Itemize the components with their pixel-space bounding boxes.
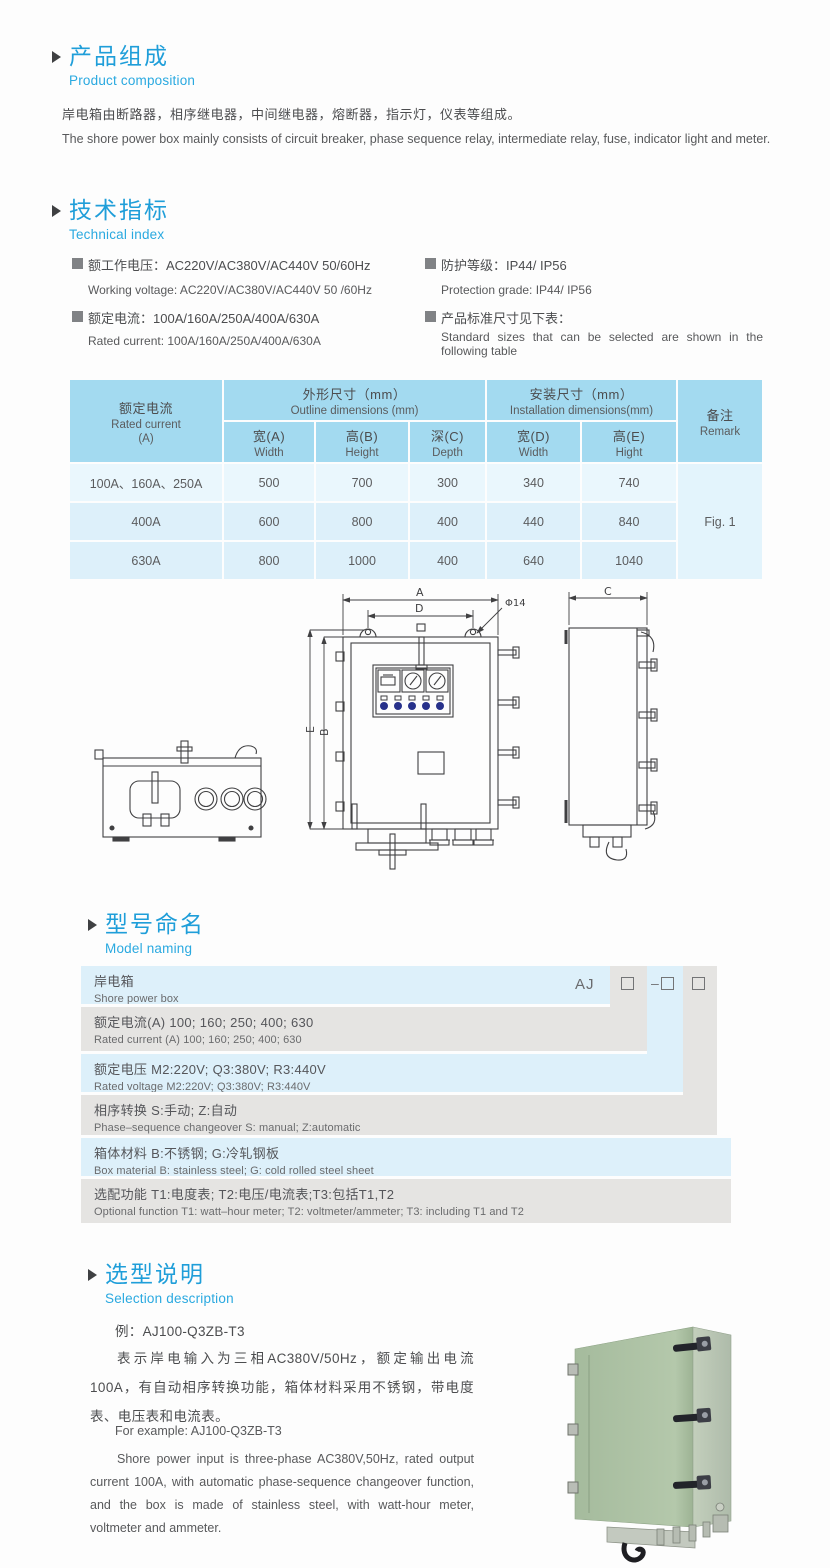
header-en: Installation dimensions(mm) [510, 405, 653, 417]
meter-panel [373, 665, 453, 717]
section-technical-index-header: 技术指标 Technical index [52, 198, 169, 242]
selection-example-zh: 例：AJ100-Q3ZB-T3 [115, 1320, 245, 1340]
header-en: Depth [432, 447, 463, 459]
header-unit: (A) [138, 433, 153, 445]
header-zh: 安装尺寸（mm） [530, 384, 634, 403]
section-title-zh: 选型说明 [105, 1262, 234, 1287]
catalog-page: 产品组成 Product composition 岸电箱由断路器，相序继电器，中… [0, 0, 830, 1568]
table-header-outline-dims: 外形尺寸（mm） Outline dimensions (mm) [224, 380, 485, 420]
spec-rated-current-zh: 额定电流：100A/160A/250A/400A/630A [88, 308, 319, 327]
table-cell: 400A [70, 503, 222, 540]
spec-protection-grade-en: Protection grade: IP44/ IP56 [441, 283, 592, 297]
section-arrow-icon [88, 1269, 97, 1281]
section-title-zh: 型号命名 [105, 912, 205, 937]
model-row-zh: 额定电流(A) 100; 160; 250; 400; 630 [94, 1012, 647, 1031]
table-cell-remark: Fig. 1 [678, 464, 762, 579]
model-row-en: Shore power box [94, 993, 610, 1004]
model-code-box-2 [661, 977, 674, 990]
model-code-dash: – [651, 975, 659, 991]
product-photo [545, 1303, 803, 1565]
model-row-zh: 箱体材料 B:不锈钢; G:冷轧钢板 [94, 1143, 731, 1162]
table-subheader-width-d: 宽(D) Width [487, 422, 580, 462]
model-row-zh: 岸电箱 [94, 971, 610, 990]
spec-protection-grade-zh: 防护等级：IP44/ IP56 [441, 255, 567, 274]
spec-standard-sizes: 产品标准尺寸见下表： [425, 308, 765, 327]
model-row-optional-function: 选配功能 T1:电度表; T2:电压/电流表;T3:包括T1,T2 Option… [81, 1179, 731, 1223]
table-subheader-height-e: 高(E) Hight [582, 422, 676, 462]
svg-text:C: C [604, 585, 612, 598]
table-cell: 800 [224, 542, 314, 579]
model-row-en: Rated current (A) 100; 160; 250; 400; 63… [94, 1034, 647, 1046]
header-en: Hight [616, 447, 643, 459]
section-arrow-icon [88, 919, 97, 931]
section-model-naming-header: 型号命名 Model naming [88, 912, 205, 956]
section-arrow-icon [52, 205, 61, 217]
spec-standard-sizes-en: Standard sizes that can be selected are … [441, 330, 763, 358]
section-title-zh: 技术指标 [69, 198, 169, 223]
header-zh: 宽(D) [517, 426, 550, 445]
header-en: Width [254, 447, 283, 459]
square-bullet-icon [72, 311, 83, 322]
model-row-shore-power-box: 岸电箱 Shore power box [81, 966, 610, 1004]
drawing-front-view [336, 624, 519, 869]
model-row-en: Phase–sequence changeover S: manual; Z:a… [94, 1122, 717, 1134]
square-bullet-icon [425, 311, 436, 322]
model-row-phase-sequence: 相序转换 S:手动; Z:自动 Phase–sequence changeove… [81, 1095, 717, 1135]
model-row-rated-voltage: 额定电压 M2:220V; Q3:380V; R3:440V Rated vol… [81, 1054, 683, 1092]
model-row-en: Box material B: stainless steel; G: cold… [94, 1165, 731, 1176]
table-cell: 600 [224, 503, 314, 540]
spec-working-voltage: 额工作电压：AC220V/AC380V/AC440V 50/60Hz [72, 255, 412, 274]
table-cell: 700 [316, 464, 408, 501]
header-en: Outline dimensions (mm) [291, 405, 419, 417]
svg-text:A: A [416, 586, 424, 599]
selection-example-en: For example: AJ100-Q3ZB-T3 [115, 1424, 282, 1438]
spec-working-voltage-zh: 额工作电压：AC220V/AC380V/AC440V 50/60Hz [88, 255, 371, 274]
table-cell: 1000 [316, 542, 408, 579]
spec-rated-current: 额定电流：100A/160A/250A/400A/630A [72, 308, 412, 327]
table-cell: 340 [487, 464, 580, 501]
section-selection-description-header: 选型说明 Selection description [88, 1262, 234, 1306]
model-row-box-material: 箱体材料 B:不锈钢; G:冷轧钢板 Box material B: stain… [81, 1138, 731, 1176]
table-cell: 1040 [582, 542, 676, 579]
table-cell: 630A [70, 542, 222, 579]
spec-working-voltage-en: Working voltage: AC220V/AC380V/AC440V 50… [88, 283, 372, 297]
section-title-en: Model naming [105, 941, 205, 956]
header-zh: 备注 [706, 405, 733, 424]
model-code-box-1 [621, 977, 634, 990]
spec-rated-current-en: Rated current: 100A/160A/250A/400A/630A [88, 334, 321, 348]
dimensions-table: 额定电流 Rated current (A) 外形尺寸（mm） Outline … [70, 380, 762, 579]
svg-text:E: E [304, 726, 317, 733]
section-title-en: Product composition [69, 73, 195, 88]
table-header-install-dims: 安装尺寸（mm） Installation dimensions(mm) [487, 380, 676, 420]
model-naming-diagram: 岸电箱 Shore power box 额定电流(A) 100; 160; 25… [81, 966, 731, 1224]
section-title-en: Selection description [105, 1291, 234, 1306]
model-code-prefix: AJ [575, 976, 595, 993]
header-en: Remark [700, 426, 740, 438]
technical-drawing: A D Φ14 E B C [85, 580, 785, 880]
table-cell: 640 [487, 542, 580, 579]
section-arrow-icon [52, 51, 61, 63]
drawing-bottom-view [95, 741, 266, 841]
header-zh: 高(E) [613, 426, 645, 445]
square-bullet-icon [425, 258, 436, 269]
header-zh: 额定电流 [119, 398, 173, 417]
header-en: Height [345, 447, 378, 459]
table-cell: 740 [582, 464, 676, 501]
svg-text:D: D [415, 602, 423, 615]
table-cell: 100A、160A、250A [70, 464, 222, 501]
table-subheader-width-a: 宽(A) Width [224, 422, 314, 462]
dimension-labels: A D Φ14 E B C [304, 585, 612, 736]
header-en: Width [519, 447, 548, 459]
model-row-en: Optional function T1: watt–hour meter; T… [94, 1206, 731, 1218]
table-cell: 400 [410, 503, 485, 540]
model-row-en: Rated voltage M2:220V; Q3:380V; R3:440V [94, 1081, 683, 1092]
cabinet-illustration [568, 1327, 731, 1560]
table-cell: 300 [410, 464, 485, 501]
model-row-zh: 额定电压 M2:220V; Q3:380V; R3:440V [94, 1059, 683, 1078]
header-zh: 高(B) [346, 426, 378, 445]
header-en: Rated current [111, 419, 181, 431]
selection-body-en: Shore power input is three-phase AC380V,… [90, 1448, 474, 1540]
table-cell: 800 [316, 503, 408, 540]
section-product-composition-header: 产品组成 Product composition [52, 44, 195, 88]
selection-body-zh: 表示岸电输入为三相AC380V/50Hz，额定输出电流100A，有自动相序转换功… [90, 1344, 474, 1431]
header-zh: 深(C) [431, 426, 464, 445]
table-cell: 400 [410, 542, 485, 579]
svg-text:B: B [318, 728, 331, 736]
section-title-en: Technical index [69, 227, 169, 242]
table-subheader-height-b: 高(B) Height [316, 422, 408, 462]
drawing-side-view [566, 592, 657, 860]
model-row-zh: 相序转换 S:手动; Z:自动 [94, 1100, 717, 1119]
table-header-remark: 备注 Remark [678, 380, 762, 462]
table-cell: 440 [487, 503, 580, 540]
spec-standard-sizes-zh: 产品标准尺寸见下表： [441, 308, 571, 327]
header-zh: 外形尺寸（mm） [303, 384, 407, 403]
spec-protection-grade: 防护等级：IP44/ IP56 [425, 255, 765, 274]
composition-body-zh: 岸电箱由断路器，相序继电器，中间继电器，熔断器，指示灯，仪表等组成。 [62, 104, 762, 123]
model-code-box-3 [692, 977, 705, 990]
table-cell: 500 [224, 464, 314, 501]
square-bullet-icon [72, 258, 83, 269]
section-title-zh: 产品组成 [69, 44, 195, 69]
model-row-zh: 选配功能 T1:电度表; T2:电压/电流表;T3:包括T1,T2 [94, 1184, 731, 1203]
table-cell: 840 [582, 503, 676, 540]
table-header-rated-current: 额定电流 Rated current (A) [70, 380, 222, 462]
model-row-rated-current: 额定电流(A) 100; 160; 250; 400; 630 Rated cu… [81, 1007, 647, 1051]
svg-text:Φ14: Φ14 [505, 598, 526, 609]
table-subheader-depth-c: 深(C) Depth [410, 422, 485, 462]
header-zh: 宽(A) [253, 426, 285, 445]
composition-body-en: The shore power box mainly consists of c… [62, 132, 782, 146]
